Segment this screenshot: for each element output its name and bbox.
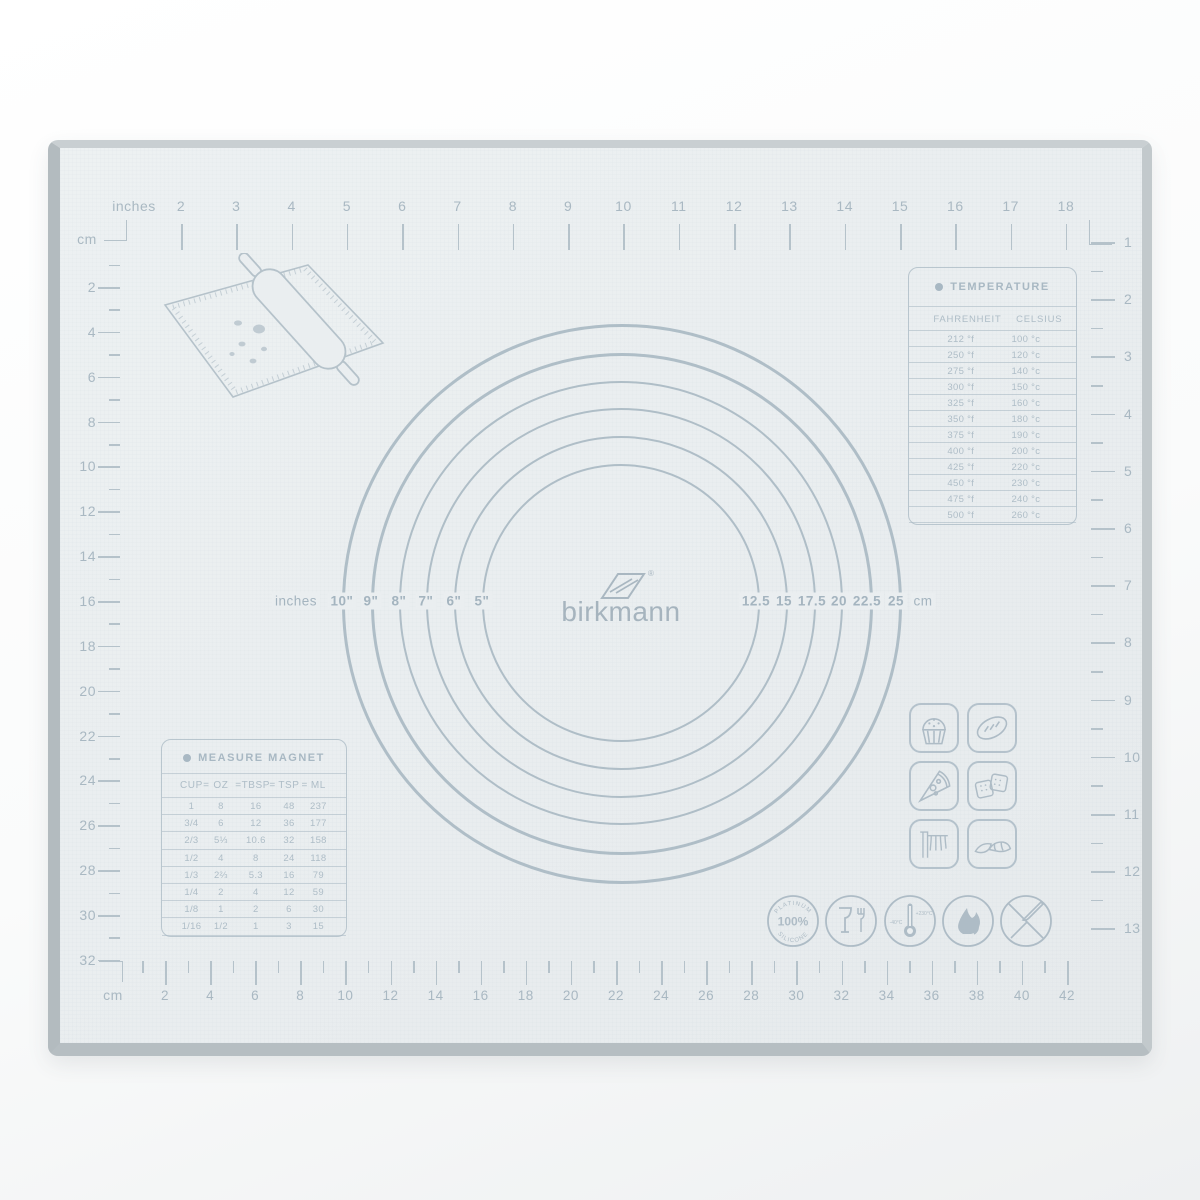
measure-value: 10.6 [246,835,266,846]
bullet-dot-icon [183,754,191,762]
ruler-number: 26 [691,988,721,1003]
ruler-tick [402,224,404,250]
rolling-pin-board-icon [128,253,408,413]
measure-value: 1/16 [182,921,202,932]
table-divider [909,490,1076,491]
ruler-number: 34 [872,988,902,1003]
measure-value: 158 [310,835,327,846]
table-divider [909,522,1076,523]
table-divider [162,917,346,918]
ruler-number: 6 [1124,520,1146,536]
ruler-tick [109,848,120,850]
ruler-number: 40 [1007,988,1037,1003]
measure-value: 24 [283,853,294,864]
ruler-tick [593,961,595,973]
circle-size-label: 12.5 [739,593,773,610]
circle-size-label: 7" [416,593,437,610]
table-divider [909,306,1076,307]
ruler-tick [639,961,641,973]
temp-celsius-value: 180 °c [1011,414,1040,425]
measure-value: 59 [313,887,324,898]
ruler-tick [999,961,1001,973]
crackers-icon [967,761,1017,811]
temp-celsius-value: 260 °c [1011,510,1040,521]
ruler-tick [98,691,120,693]
ruler-tick [458,224,460,250]
measure-value: 3 [286,921,292,932]
registered-mark: ® [648,569,654,578]
ruler-tick [679,224,681,250]
ruler-number: 13 [1124,920,1146,936]
ruler-tick [819,961,821,973]
ruler-number: 12 [376,988,406,1003]
ruler-number: 16 [940,198,970,214]
bread-icon [967,703,1017,753]
measure-title: MEASURE MAGNET [162,752,346,764]
ruler-number: 6 [66,369,96,385]
ruler-number: 36 [917,988,947,1003]
circle-size-label: 5" [472,593,493,610]
measure-value: 5.3 [249,870,263,881]
ruler-number: 11 [664,198,694,214]
pizza-icon [909,761,959,811]
platinum-label: PLATINUM [774,901,812,915]
ruler-number: 28 [66,862,96,878]
ruler-tick [1066,224,1068,250]
ruler-tick [1091,871,1115,873]
measure-value: 79 [313,870,324,881]
table-divider [909,378,1076,379]
column-header: FAHRENHEIT [933,314,1001,325]
ruler-tick [1091,785,1103,787]
ruler-number: 8 [66,414,96,430]
ruler-tick [109,937,120,939]
ruler-tick [1091,299,1115,301]
table-divider [909,394,1076,395]
temp-fahrenheit-value: 300 °f [947,382,974,393]
ruler-number: 12 [1124,863,1146,879]
measure-value: 4 [253,887,259,898]
ruler-number: 5 [332,198,362,214]
measure-value: 8 [253,853,259,864]
ruler-number: 22 [66,728,96,744]
ruler-tick [345,961,347,985]
ruler-tick [436,961,438,985]
no-knife-icon [999,894,1053,948]
ruler-number: 10 [1124,749,1146,765]
ruler-tick [864,961,866,973]
ruler-tick [1091,700,1115,702]
ruler-number: 32 [66,952,96,968]
measure-value: 1/8 [184,904,198,915]
ruler-tick [1067,961,1069,985]
ruler-tick [661,961,663,985]
ruler-number: 12 [719,198,749,214]
temp-fahrenheit-value: 275 °f [947,366,974,377]
ruler-tick [571,961,573,985]
ruler-number: 6 [387,198,417,214]
ruler-tick [734,224,736,250]
column-header: CELSIUS [1016,314,1062,325]
temp-fahrenheit-value: 500 °f [947,510,974,521]
measure-value: 1/4 [184,887,198,898]
temp-max-label: +230°C [916,911,933,917]
ruler-number: 14 [830,198,860,214]
temp-celsius-value: 190 °c [1011,430,1040,441]
corner-bracket-top-left [104,220,127,241]
measure-value: 12 [250,818,261,829]
corner-bracket-bottom-left [99,961,123,982]
ruler-number: 26 [66,817,96,833]
measure-value: 16 [250,801,261,812]
table-divider [162,849,346,850]
measure-value: 1 [189,801,195,812]
ruler-tick [109,534,120,536]
ruler-tick [98,466,120,468]
ruler-tick [98,870,120,872]
column-header: OZ [213,780,228,791]
temperature-range-icon: -40°C +230°C [883,894,937,948]
table-divider [909,346,1076,347]
ruler-number: 16 [466,988,496,1003]
ruler-tick [98,601,120,603]
measure-value: 8 [218,801,224,812]
ruler-tick [1091,471,1115,473]
table-divider [162,773,346,774]
ruler-tick [98,736,120,738]
ruler-number: 8 [1124,634,1146,650]
ruler-number: 10 [66,458,96,474]
left-ruler-unit-label: cm [72,231,102,247]
measure-value: 2 [253,904,259,915]
platinum-silicone-icon: PLATINUM 100% SILICONE [766,894,820,948]
ruler-tick [1091,728,1103,730]
ruler-tick [1091,900,1103,902]
ruler-tick [368,961,370,973]
temp-fahrenheit-value: 250 °f [947,350,974,361]
measure-value: 118 [310,853,326,864]
column-header: TSP [278,780,299,791]
ruler-tick [165,961,167,985]
temp-celsius-value: 140 °c [1011,366,1040,377]
ruler-tick [210,961,212,985]
column-header: ML [311,780,326,791]
measure-title-text: MEASURE MAGNET [198,752,325,764]
temp-celsius-value: 220 °c [1011,462,1040,473]
temp-fahrenheit-value: 450 °f [947,478,974,489]
measure-value: 1/3 [184,870,198,881]
ruler-tick [706,961,708,985]
svg-text:PLATINUM: PLATINUM [774,901,812,915]
hundred-percent-label: 100% [778,915,809,929]
ruler-number: 32 [827,988,857,1003]
measure-value: 16 [283,870,294,881]
ruler-tick [98,332,120,334]
ruler-number: 7 [443,198,473,214]
table-divider [909,330,1076,331]
circle-size-label: 20 [828,593,850,610]
ruler-number: 24 [66,772,96,788]
table-divider [162,797,346,798]
ruler-tick [300,961,302,985]
ruler-tick [1091,328,1103,330]
ruler-tick [255,961,257,985]
ruler-number: 10 [330,988,360,1003]
ruler-tick [109,309,120,311]
ruler-tick [887,961,889,985]
ruler-tick [751,961,753,985]
ruler-tick [900,224,902,250]
measure-value: 6 [286,904,292,915]
ruler-number: 28 [736,988,766,1003]
measure-value: 2⅔ [214,870,228,881]
measure-value: 237 [310,801,327,812]
temp-celsius-value: 230 °c [1011,478,1040,489]
temperature-panel: TEMPERATURE FAHRENHEITCELSIUS212 °f100 °… [908,267,1077,525]
ruler-number: 18 [1051,198,1081,214]
ruler-number: 9 [1124,692,1146,708]
ruler-number: 8 [285,988,315,1003]
ruler-tick [955,224,957,250]
circle-unit-label: inches [272,593,320,610]
ruler-tick [1091,414,1115,416]
ruler-number: 18 [511,988,541,1003]
temp-fahrenheit-value: 475 °f [947,494,974,505]
ruler-number: 1 [1124,234,1146,250]
measure-value: 12 [283,887,294,898]
ruler-number: 6 [240,988,270,1003]
temp-celsius-value: 120 °c [1011,350,1040,361]
measure-value: 30 [313,904,324,915]
ruler-number: 30 [66,907,96,923]
temp-fahrenheit-value: 212 °f [947,334,974,345]
table-divider [162,866,346,867]
table-divider [162,831,346,832]
measure-value: 32 [283,835,294,846]
ruler-number: 17 [996,198,1026,214]
equals-separator: = [302,780,308,791]
ruler-number: 30 [781,988,811,1003]
ruler-tick [1091,757,1115,759]
ruler-tick [98,915,120,917]
table-divider [909,362,1076,363]
temp-celsius-value: 160 °c [1011,398,1040,409]
table-divider [909,426,1076,427]
ruler-tick [109,713,120,715]
table-divider [162,814,346,815]
ruler-tick [481,961,483,985]
measure-value: 48 [283,801,294,812]
circle-size-label: 10" [328,593,357,610]
measure-value: 2 [218,887,224,898]
ruler-tick [98,287,120,289]
ruler-tick [977,961,979,985]
measure-value: 2/3 [184,835,198,846]
food-safe-icon [824,894,878,948]
ruler-tick [1011,224,1013,250]
ruler-tick [932,961,934,985]
top-ruler-unit-label: inches [112,198,156,214]
equals-separator: = [203,780,209,791]
ruler-tick [109,893,120,895]
ruler-tick [98,422,120,424]
ruler-tick [1091,614,1103,616]
ruler-tick [684,961,686,973]
measure-value: 1 [253,921,259,932]
mat-surface: inches cm cm 23456789101112131415161718 … [60,148,1142,1043]
ruler-tick [292,224,294,250]
ruler-tick [842,961,844,985]
temp-celsius-value: 240 °c [1011,494,1040,505]
measure-magnet-panel: MEASURE MAGNET CUPOZTBSPTSPML====1816482… [161,739,347,937]
ruler-number: 2 [166,198,196,214]
ruler-tick [109,668,120,670]
ruler-tick [236,224,238,250]
ruler-tick [1091,928,1115,930]
product-photo: { "brand": { "name": "birkmann", "regist… [0,0,1200,1200]
ruler-tick [98,511,120,513]
ruler-number: 2 [150,988,180,1003]
temp-fahrenheit-value: 375 °f [947,430,974,441]
measure-value: 6 [218,818,224,829]
ruler-tick [796,961,798,985]
ruler-number: 20 [66,683,96,699]
ruler-number: 14 [66,548,96,564]
heat-resistant-flame-icon [941,894,995,948]
ruler-tick [109,265,120,267]
circle-size-label: 8" [389,593,410,610]
measure-value: 5⅓ [214,835,228,846]
ruler-number: 8 [498,198,528,214]
measure-value: 1 [218,904,224,915]
ruler-number: 22 [601,988,631,1003]
circle-unit-label: cm [911,593,936,610]
ruler-tick [323,961,325,973]
ruler-tick [278,961,280,973]
ruler-tick [1091,843,1103,845]
ruler-number: 4 [1124,406,1146,422]
ruler-tick [1091,671,1103,673]
ruler-number: 20 [556,988,586,1003]
ruler-tick [1091,385,1103,387]
ruler-number: 3 [1124,348,1146,364]
ruler-number: 10 [608,198,638,214]
measure-value: 3/4 [184,818,198,829]
ruler-tick [616,961,618,985]
croissant-icon [967,819,1017,869]
temp-fahrenheit-value: 350 °f [947,414,974,425]
equals-separator: = [269,780,275,791]
table-divider [162,935,346,936]
ruler-tick [954,961,956,973]
ruler-tick [548,961,550,973]
ruler-tick [503,961,505,973]
circle-size-label: 6" [444,593,465,610]
column-header: CUP [180,780,203,791]
ruler-tick [458,961,460,973]
ruler-number: 3 [221,198,251,214]
ruler-tick [623,224,625,250]
ruler-tick [1091,528,1115,530]
circle-size-label: 17.5 [795,593,829,610]
ruler-tick [391,961,393,985]
table-divider [909,506,1076,507]
equals-separator: = [235,780,241,791]
ruler-number: 9 [553,198,583,214]
ruler-tick [526,961,528,985]
ruler-tick [109,399,120,401]
ruler-tick [1044,961,1046,973]
ruler-tick [109,579,120,581]
temperature-title: TEMPERATURE [909,281,1076,293]
ruler-number: 4 [277,198,307,214]
ruler-number: 11 [1124,806,1146,822]
table-divider [909,442,1076,443]
ruler-number: 4 [66,324,96,340]
pasta-icon [909,819,959,869]
ruler-number: 7 [1124,577,1146,593]
ruler-tick [1091,356,1115,358]
table-divider [909,474,1076,475]
table-divider [909,458,1076,459]
ruler-tick [1091,814,1115,816]
ruler-number: 14 [421,988,451,1003]
temp-celsius-value: 200 °c [1011,446,1040,457]
ruler-tick [109,803,120,805]
table-divider [162,900,346,901]
ruler-tick [98,825,120,827]
temp-fahrenheit-value: 425 °f [947,462,974,473]
ruler-tick [347,224,349,250]
ruler-tick [909,961,911,973]
ruler-tick [413,961,415,973]
ruler-number: 13 [774,198,804,214]
ruler-tick [109,623,120,625]
brand-name: birkmann [561,596,681,628]
ruler-tick [1091,242,1115,244]
ruler-tick [1091,499,1103,501]
table-divider [909,410,1076,411]
ruler-tick [98,556,120,558]
ruler-tick [845,224,847,250]
ruler-number: 18 [66,638,96,654]
measure-value: 15 [313,921,324,932]
table-divider [162,883,346,884]
ruler-number: 4 [195,988,225,1003]
circle-size-label: 9" [361,593,382,610]
ruler-tick [109,758,120,760]
temp-fahrenheit-value: 325 °f [947,398,974,409]
ruler-tick [98,646,120,648]
rolling-board-illustration [128,253,408,413]
temp-fahrenheit-value: 400 °f [947,446,974,457]
ruler-tick [98,780,120,782]
ruler-tick [109,444,120,446]
ruler-tick [233,961,235,973]
ruler-tick [98,960,120,962]
measure-value: 177 [310,818,327,829]
circle-size-label: 25 [885,593,907,610]
ruler-tick [1091,557,1103,559]
measure-value: 4 [218,853,224,864]
ruler-tick [774,961,776,973]
column-header: TBSP [242,780,271,791]
ruler-tick [513,224,515,250]
ruler-number: 16 [66,593,96,609]
ruler-number: 5 [1124,463,1146,479]
ruler-tick [109,354,120,356]
ruler-tick [1022,961,1024,985]
